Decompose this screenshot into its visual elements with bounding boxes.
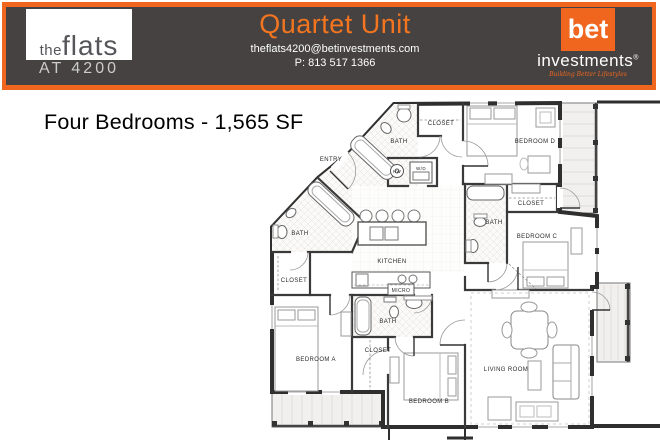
label-bedroom-b: BEDROOM B xyxy=(409,399,449,405)
label-bath-a: BATH xyxy=(291,231,308,237)
label-closet-a: CLOSET xyxy=(281,278,307,284)
label-living-room: LIVING ROOM xyxy=(484,367,528,373)
label-hw: HW xyxy=(393,169,402,174)
label-entry: ENTRY xyxy=(320,157,342,163)
label-bedroom-a: BEDROOM A xyxy=(296,357,336,363)
label-bedroom-c: BEDROOM C xyxy=(517,234,558,240)
balcony-bottom xyxy=(272,392,385,427)
label-closet-top: CLOSET xyxy=(428,121,454,127)
balcony-top-right xyxy=(560,103,598,213)
label-wd: W/D xyxy=(416,166,426,171)
label-bath-c: BATH xyxy=(485,220,502,226)
label-bedroom-d: BEDROOM D xyxy=(515,139,556,145)
label-bath-top: BATH xyxy=(390,139,407,145)
label-closet-b: CLOSET xyxy=(365,348,391,354)
label-kitchen: KITCHEN xyxy=(377,259,406,265)
floor-plan: ENTRY BATH CLOSET BEDROOM D HW W/D CLOSE… xyxy=(0,0,660,440)
label-closet-c: CLOSET xyxy=(518,201,544,207)
label-micro: MICRO xyxy=(392,288,411,294)
label-bath-b: BATH xyxy=(379,319,396,325)
